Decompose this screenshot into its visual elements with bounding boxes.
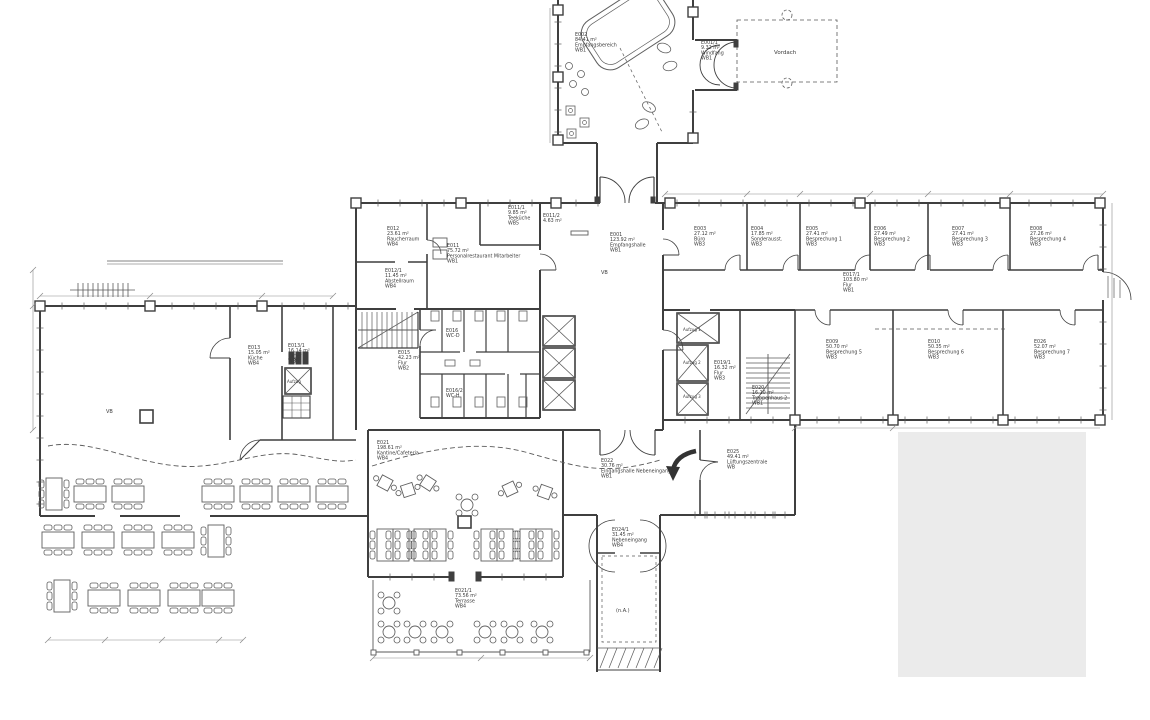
room-label: E019/116.32 m²FlurWB3: [714, 360, 736, 382]
entrance-arrow: [666, 451, 696, 481]
room-label: E001123.92 m²EmpfangshalleWB1: [610, 232, 646, 254]
room-label: E017/1103.80 m²FlurWB1: [843, 272, 868, 294]
room-label: E00327.12 m²BüroWB3: [694, 226, 716, 248]
room-label: E011/19.85 m²TeekücheWB5: [507, 205, 530, 227]
room-label: E01542.23 m²FlurWB2: [398, 350, 420, 372]
room-label: E021/173.56 m²TerrasseWB4: [454, 588, 477, 610]
room-label: E00417.85 m²Sonderausst.WB3: [751, 226, 782, 248]
floor-plan-drawing: E00284.41 m²EmpfangsbereichWB1E001/19.32…: [0, 0, 1150, 720]
annotation: Aufzug 1: [683, 327, 701, 332]
room-label: E00284.41 m²EmpfangsbereichWB1: [575, 32, 617, 54]
annotation: VB: [106, 409, 113, 415]
room-label: E01315.05 m²KücheWB4: [248, 345, 270, 367]
room-label: E016WC-D: [446, 328, 460, 339]
annotation: Aufzug 2: [683, 360, 701, 365]
room-label: E02230.76 m²Eingangshalle NebeneingangWB…: [601, 458, 671, 480]
annotation: (n.A.): [616, 608, 630, 614]
room-label: E012/111.45 m²AbstellraumWB4: [385, 268, 414, 290]
room-label: E016/2WC-H: [446, 388, 463, 399]
floor-plan-sheet: E00284.41 m²EmpfangsbereichWB1E001/19.32…: [0, 0, 1150, 720]
room-label: E024/131.45 m²NebeneingangWB4: [612, 527, 647, 549]
room-label: E00527.41 m²Besprechung 1WB3: [806, 226, 842, 248]
room-label: E02652.07 m²Besprechung 7WB3: [1034, 339, 1070, 361]
room-label: E001/19.32 m²WindfangWB1: [701, 40, 724, 62]
room-label: E01223.61 m²RaucherraumWB4: [387, 226, 420, 248]
pilasters: [35, 5, 1105, 425]
room-label: E00950.70 m²Besprechung 5WB3: [826, 339, 862, 361]
furniture: [39, 0, 681, 643]
room-label: E00627.49 m²Besprechung 2WB3: [874, 226, 910, 248]
room-label: E011/24.63 m²: [543, 213, 562, 224]
room-label: E01050.35 m²Besprechung 6WB3: [928, 339, 964, 361]
room-label: E02549.41 m²LüftungszentraleWB: [727, 449, 767, 471]
terrace: [371, 580, 590, 655]
masked-area: [898, 432, 1086, 677]
annotation: VB: [601, 270, 608, 276]
room-label: E00727.41 m²Besprechung 3WB3: [952, 226, 988, 248]
columns: [140, 410, 471, 528]
room-label: E01175.72 m²Personalrestaurant Mitarbeit…: [447, 243, 520, 265]
annotation: Aufzug 3: [683, 394, 701, 399]
room-label: E00827.26 m²Besprechung 4WB3: [1030, 226, 1066, 248]
annotation: Aufzug: [287, 379, 301, 384]
annotation: Vordach: [774, 50, 797, 56]
